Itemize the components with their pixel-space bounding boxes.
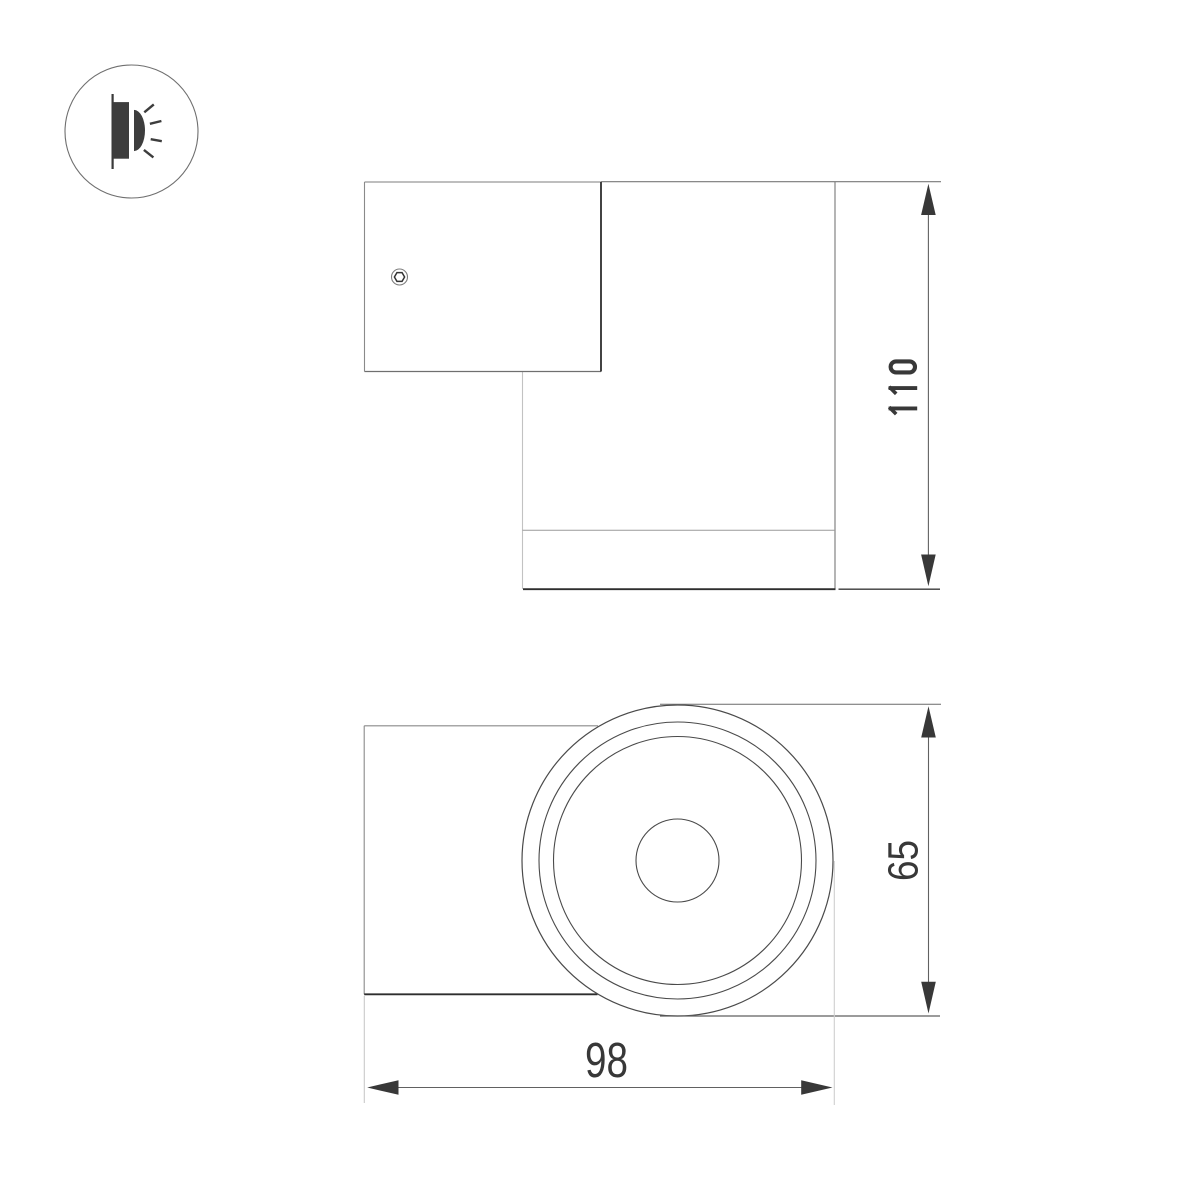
svg-text:98: 98 [585, 1034, 628, 1088]
svg-text:65: 65 [880, 840, 928, 881]
